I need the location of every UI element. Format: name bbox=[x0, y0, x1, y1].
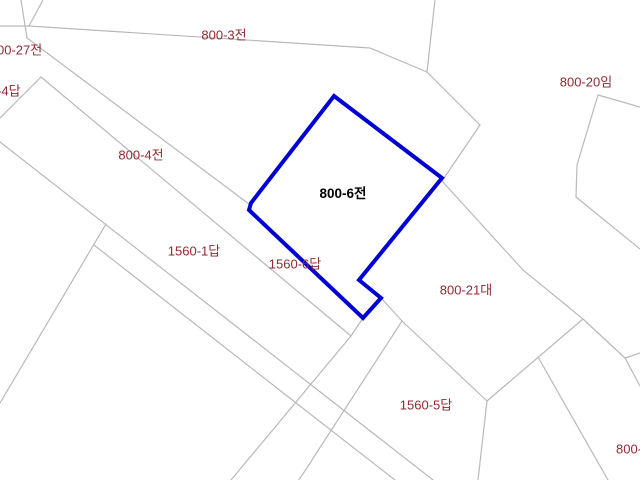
boundary-line bbox=[576, 197, 640, 249]
boundary-line bbox=[583, 319, 625, 358]
boundary-line bbox=[381, 298, 402, 321]
parcel-map-svg bbox=[0, 0, 640, 480]
boundary-line bbox=[598, 95, 640, 107]
boundary-line bbox=[487, 319, 583, 401]
parcel-label-800-20: 800-20임 bbox=[560, 72, 612, 91]
boundary-line bbox=[299, 321, 402, 480]
parcel-label-800-3: 800-3전 bbox=[201, 25, 246, 44]
cadastral-map-canvas[interactable]: 800-3전 800-27전 800-4답 800-4전 800-6전 800-… bbox=[0, 0, 640, 480]
parcel-label-800-27: 800-27전 bbox=[0, 40, 42, 59]
boundary-line bbox=[625, 358, 640, 386]
boundary-line bbox=[21, 0, 27, 38]
parcel-label-1560-1: 1560-1답 bbox=[168, 241, 220, 260]
parcel-label-800-clipped: 800- bbox=[616, 442, 640, 457]
parcel-label-1560-5: 1560-5답 bbox=[400, 395, 452, 414]
parcel-label-1560-6: 1560-6답 bbox=[269, 254, 321, 273]
boundary-line bbox=[231, 336, 351, 480]
boundary-line bbox=[427, 0, 435, 72]
boundary-line bbox=[27, 38, 249, 204]
boundary-line bbox=[41, 77, 351, 336]
boundary-line bbox=[576, 95, 598, 197]
boundary-line bbox=[538, 357, 608, 480]
parcel-boundary-lines bbox=[0, 0, 640, 480]
boundary-line bbox=[402, 321, 487, 401]
boundary-line bbox=[94, 245, 395, 480]
boundary-line bbox=[478, 401, 487, 480]
boundary-line bbox=[0, 224, 106, 403]
boundary-line bbox=[351, 318, 363, 336]
parcel-label-800-4-jeon: 800-4전 bbox=[118, 145, 163, 164]
boundary-line bbox=[625, 353, 640, 358]
parcel-label-800-21: 800-21대 bbox=[440, 280, 492, 299]
parcel-label-800-4-dap: 800-4답 bbox=[0, 81, 21, 100]
highlighted-parcel-outline-800-6[interactable] bbox=[249, 96, 442, 318]
boundary-line bbox=[442, 125, 480, 181]
boundary-line bbox=[29, 0, 43, 26]
parcel-label-800-6-highlighted: 800-6전 bbox=[320, 182, 367, 202]
boundary-line bbox=[427, 72, 480, 125]
